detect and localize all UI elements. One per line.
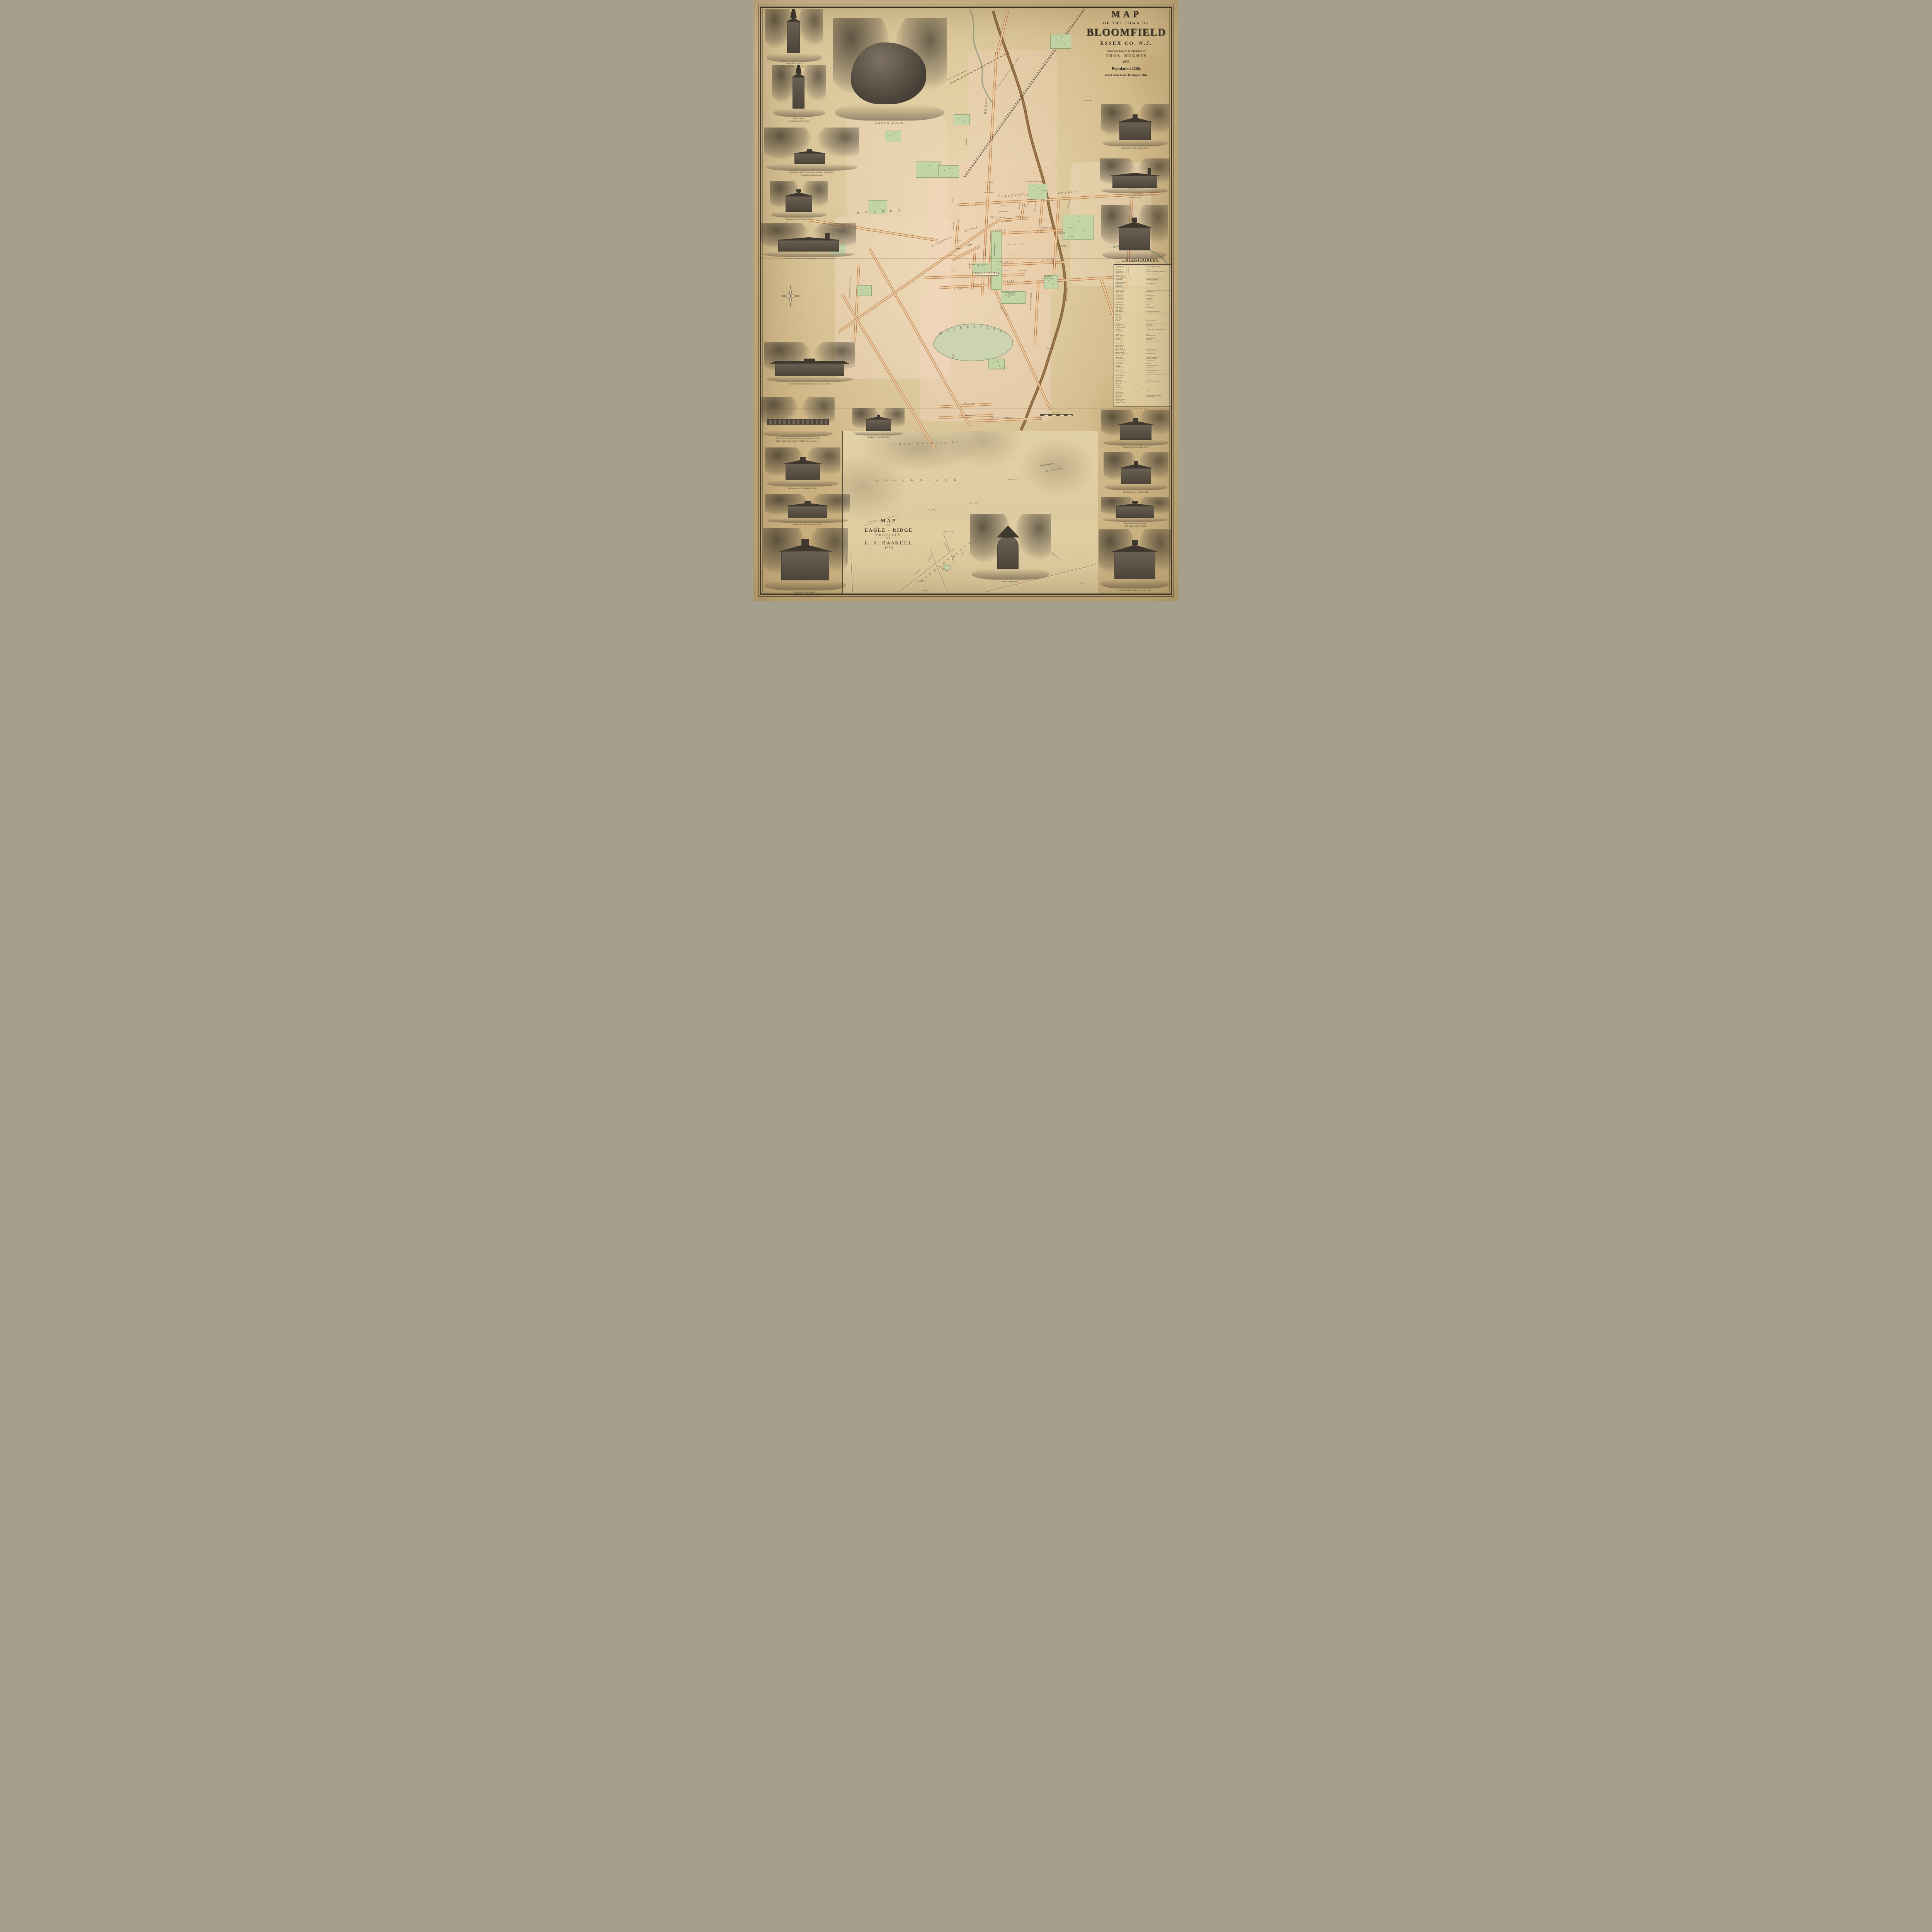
vignette-ground: [763, 430, 833, 437]
subscriber-row: Cockefair, Saml.: [1116, 302, 1170, 304]
vignette-engraving: C. W. Powers' Oakum Manufactory. Residen…: [761, 223, 856, 260]
map-sheet: W A T S E S S I N G MAP OF EAGLE - RIDGE…: [753, 0, 1179, 601]
map-label: C. M. Davis BLOOMFIELD CLASSICAL SCHOOL: [1043, 275, 1054, 279]
subscriber-name: Reford, James A.: [1116, 375, 1146, 377]
inset-label: Walnut Cottage: [917, 581, 925, 583]
map-label: J. C. Beach: [1024, 216, 1030, 217]
vignette-ground: [771, 212, 827, 218]
subscriber-occupation: Hat Manufacturer: [1146, 325, 1170, 327]
title-lithographer: Lith of Friend & Aub, 80 Walnut St. Phil…: [1079, 74, 1174, 77]
vignette-engraving: Residence of C. T. Unangst, Esqr.: [1101, 104, 1169, 150]
map-label: STREET: [1015, 215, 1024, 217]
subscriber-row: Jenkins, Wm. Dealer in Dry Goods & Groce…: [1116, 342, 1170, 343]
subscriber-occupation: Eagle Rock: [1146, 339, 1170, 341]
title-author: THOS. HUGHES: [1079, 54, 1174, 58]
subscriber-row: Haskell, L. S. Eagle Rock: [1116, 339, 1170, 341]
vignette-art: [764, 342, 855, 382]
subscribers-panel: Archdeacon, John Proprietor Bloomfield H…: [1114, 264, 1172, 406]
vignette-art: [1104, 452, 1168, 490]
subscriber-row: Reford, James A.: [1116, 375, 1170, 377]
subscriber-occupation: House Carpenter: [1146, 360, 1170, 361]
vignette-caption: D. Oakes' Cassimere Manufactory, Bloomfi…: [1121, 194, 1148, 199]
map-label: GROVE: [1052, 257, 1055, 264]
map-label: DODD STREET: [992, 417, 1013, 420]
map-label: STREET: [1043, 227, 1056, 230]
vignette-caption: Bloomfield Female Seminary, R. L. Cooke,…: [789, 591, 821, 597]
inset-title-block: MAP OF EAGLE - RIDGE PROPERTY OF L. S. H…: [858, 518, 920, 550]
building-silhouette: [794, 153, 825, 164]
vignette-engraving: Presbyterian Church, Revd. J. M. Sherwoo…: [765, 9, 823, 68]
vignette-caption: J. H. Rondell's Boarding School for Boys…: [1119, 589, 1151, 592]
subscriber-name: Fairchild, Josiah: [1116, 325, 1146, 327]
subscriber-occupation: [1146, 375, 1170, 377]
building-silhouette: [1114, 552, 1155, 579]
subscriber-row: Mallory, John S.: [1116, 355, 1170, 356]
green-parcel: [938, 165, 959, 178]
map-label: M. Mulhern: [1041, 190, 1047, 192]
subscriber-name: Adams, Jay L.: [1116, 267, 1146, 269]
inset-label: HASKELL: [1009, 479, 1023, 481]
subscriber-row: Gorman, Mich'l O. Farmer: [1116, 332, 1170, 333]
scale-label: SCALE: [1040, 412, 1073, 414]
building-silhouette: [1112, 176, 1157, 188]
vignette-engraving: Newark & Bloomfield Rail Road Depot at B…: [764, 342, 855, 386]
inset-title-year: 1856: [858, 546, 920, 550]
vignette-engraving: EAGLE ROCK: [833, 18, 947, 125]
subscribers-title: SUBSCRIBERS.: [1113, 258, 1173, 263]
map-label: A. F. Seon: [1005, 254, 1020, 256]
green-parcel: [954, 114, 970, 125]
title-year: 1856.: [1079, 60, 1174, 64]
map-label: Dr. E. D. Ward: [1002, 270, 1009, 272]
vignette-engraving: Bloomfield Female Seminary, R. L. Cooke,…: [763, 528, 848, 597]
building-silhouette: [866, 420, 890, 431]
subscriber-row: Adams, Jay L.: [1116, 267, 1170, 269]
vignette-art: [761, 223, 856, 257]
map-label: BLOOMFIELD INSTITUTE: [1025, 181, 1043, 183]
building-silhouette: [1116, 506, 1154, 517]
subscriber-row: Baldwin, Edward A.: [1116, 287, 1170, 289]
map-label: H. J. Davis: [1068, 236, 1074, 237]
vignette-ground: [1103, 440, 1169, 446]
map-label: Heirs of J. Ward: [948, 255, 956, 257]
map-label: JERSEY ST.: [953, 222, 955, 230]
vignette-caption: Residence of Wm. B. Bradbury, Esqr.: [788, 487, 817, 490]
subscriber-row: Dodd, Josiah: [1116, 317, 1170, 318]
map-label: Swift: [968, 267, 971, 268]
vignette-caption: Residence of S. A. Brower, Esqr.: [786, 218, 811, 221]
subscriber-name: Unangst, C. T.: [1116, 385, 1146, 386]
subscriber-occupation: [1146, 287, 1170, 289]
vignette-engraving: Residence of David Oakes, Esqr.: [1101, 205, 1168, 263]
vignette-caption: Residence of Ira Dodd, Esqr.: [867, 436, 890, 439]
vignette-engraving: H. B. & W. A. Freeman, Dealers in Watses…: [761, 397, 835, 443]
subscriber-name: Gorman, Mich'l O.: [1116, 332, 1146, 333]
building-silhouette: [1121, 468, 1151, 485]
vignette-art: [1101, 205, 1168, 259]
building-silhouette: [793, 77, 804, 108]
subscriber-occupation: Dealer in Dry Goods & Groceries: [1146, 342, 1170, 343]
vignette-art: [1101, 410, 1170, 446]
subscriber-occupation: [1146, 383, 1170, 384]
title-county: ESSEX CO. N.J.: [1079, 40, 1174, 46]
map-label: T. Taylor: [951, 270, 956, 272]
subscriber-row: Stiles, S. W.: [1116, 383, 1170, 384]
vignette-art: [1099, 529, 1171, 588]
vignette-ground: [766, 53, 822, 62]
map-label: Wm. B. Bradbury: [984, 192, 993, 193]
subscriber-occupation: [1146, 302, 1170, 304]
vignette-engraving: Residence of S. A. Brower, Esqr.: [770, 181, 828, 221]
vignette-art: [1101, 497, 1169, 522]
building-silhouette: [1119, 228, 1150, 250]
subscriber-occupation: [1146, 387, 1170, 389]
map-label: E. S. Davis: [1067, 227, 1073, 229]
vignette-ground: [767, 480, 839, 486]
vignette-art: [852, 408, 905, 435]
map-label: LECTURE ROOM: [1002, 221, 1011, 223]
subscriber-name: Ehlers, H.: [1116, 320, 1146, 322]
subscriber-occupation: Proprietor Oakum Mill: [1146, 370, 1170, 372]
subscriber-name: Haskell, L. S.: [1116, 339, 1146, 341]
subscriber-name: Osborne, Chas. H.: [1116, 360, 1146, 361]
subscriber-name: Powers, C. W.: [1116, 370, 1146, 372]
subscriber-name: Baldwin, Edward A.: [1116, 287, 1146, 289]
map-label: Jay L. Adams: [1046, 348, 1054, 350]
map-label: Dr. J. A. Davis: [1018, 270, 1027, 272]
inset-title-of2: OF: [858, 537, 920, 540]
building-silhouette: [786, 464, 820, 480]
green-parcel: [1028, 184, 1047, 199]
vignette-art: [1100, 158, 1170, 193]
vignette-art: [772, 65, 826, 117]
title-block: MAP OF THE TOWN OF BLOOMFIELD ESSEX CO. …: [1079, 9, 1174, 77]
vignette-ground: [763, 252, 854, 257]
building-silhouette: [787, 22, 800, 54]
vignette-engraving: Residence of William R. Peters, Esqr.: [765, 494, 850, 526]
inset-title-owner: L. S. HASKELL: [858, 540, 920, 546]
vignette-ground: [1100, 579, 1170, 588]
vignette-art: [765, 447, 840, 486]
map-label: J. Collins: [971, 286, 976, 287]
subscriber-name: Cockefair, Saml.: [1116, 302, 1146, 304]
green-parcel: [916, 162, 940, 178]
compass-rose-icon: [779, 284, 802, 308]
subscriber-row: Van Liew, C. S.: [1116, 387, 1170, 389]
scale-rule: [1040, 414, 1073, 416]
map-label: David Oakes: [1084, 100, 1092, 102]
title-town-name: BLOOMFIELD: [1079, 26, 1174, 38]
vignette-ground: [764, 580, 846, 590]
building-silhouette: [775, 364, 844, 376]
vignette-engraving: Residence of Jay L. Adams, Esqr.: [1104, 452, 1168, 494]
map-label: Dr. J. A. Davis: [1005, 294, 1014, 296]
vignette-caption: Eyrie, Eagle Rock.: [1002, 580, 1019, 583]
map-label: Wm. Clarke: [1040, 219, 1046, 220]
map-label: Elias Labaugh: [999, 211, 1007, 212]
building-silhouette: [781, 552, 829, 581]
map-label: N. H. Dodd: [955, 240, 961, 242]
subscriber-occupation: Farmer: [1146, 332, 1170, 333]
subscriber-name: Jenkins, Wm.: [1116, 342, 1146, 343]
building-silhouette: [778, 240, 839, 252]
vignette-engraving: Residence of Wm. B. Bradbury, Esqr.: [765, 447, 840, 490]
inset-title-property: PROPERTY: [858, 533, 920, 537]
tint-wash: [920, 294, 1051, 421]
map-label: MORRIS CANAL: [1065, 287, 1068, 301]
title-surveyed-by: Surveyed, Drawn & Published by: [1079, 49, 1174, 53]
map-label: LAKE: [952, 354, 954, 359]
vignette-ground: [854, 431, 904, 435]
vignette-engraving: Residence of Ira Dodd, Esqr.: [852, 408, 905, 439]
map-label: CANAL: [965, 138, 968, 145]
map-label: BLOOMFIELD FEMALE SEMINARY R. L. Cooke: [969, 264, 988, 267]
vignette-ground: [767, 518, 848, 523]
map-label: Public School: [1000, 205, 1007, 206]
vignette-caption: C. W. Powers' Oakum Manufactory. Residen…: [782, 258, 835, 260]
subscriber-row: Powers, C. W. Proprietor Oakum Mill: [1116, 370, 1170, 372]
map-label: CHURCH: [995, 216, 1005, 218]
vignette-ground: [1101, 188, 1169, 193]
subscriber-name: Stiles, S. W.: [1116, 383, 1146, 384]
green-parcel: [857, 285, 872, 296]
map-label: MYRTLE: [965, 415, 976, 417]
subscriber-occupation: [1146, 355, 1170, 356]
vignette-caption: Bloomfield Classical School, C. M. Davis…: [1124, 522, 1146, 528]
vignette-ground: [766, 164, 857, 171]
inset-title-of: OF: [858, 524, 920, 527]
vignette-ground: [835, 104, 944, 121]
map-label: Israel C. Ward: [1007, 243, 1024, 245]
vignette-ground: [971, 569, 1049, 579]
building-silhouette: [997, 537, 1019, 569]
vignette-art: [764, 128, 859, 171]
subscriber-name: Dodd, Josiah: [1116, 317, 1146, 318]
vignette-caption: H. B. & W. A. Freeman, Dealers in Watses…: [776, 437, 820, 443]
vignette-caption: Residence of Volney Elliot, Esqr.: [1123, 446, 1148, 449]
green-parcel: [1050, 34, 1071, 49]
inset-label: Pond: [943, 568, 946, 570]
vignette-ground: [1105, 484, 1167, 490]
vignette-art: [970, 514, 1051, 580]
subscriber-name: Van Liew, C. S.: [1116, 387, 1146, 389]
vignette-art: [761, 397, 835, 437]
vignette-art: [833, 18, 947, 121]
subscriber-row: Williamson, Wm. J.: [1116, 402, 1170, 403]
inset-title-map: MAP: [858, 518, 920, 524]
inset-label: E A G L E R I D G E: [876, 478, 959, 481]
vignette-engraving: D. Oakes' Cassimere Manufactory, Bloomfi…: [1100, 158, 1170, 199]
vignette-ground: [773, 109, 825, 117]
subscriber-occupation: [1146, 402, 1170, 403]
building-silhouette: [1120, 425, 1151, 440]
subscriber-row: Osborne, Chas. H. House Carpenter: [1116, 360, 1170, 361]
map-label: WILLOW: [964, 403, 976, 405]
vignette-art: [763, 528, 848, 590]
map-label: BEACH: [995, 230, 1007, 233]
building-silhouette: [767, 419, 829, 425]
building-silhouette: [786, 196, 812, 212]
title-of-the-town-of: OF THE TOWN OF: [1079, 21, 1174, 25]
vignette-engraving: Bloomfield Classical School, C. M. Davis…: [1101, 497, 1169, 528]
building-silhouette: [851, 43, 926, 104]
inset-label: Wm. Green, M.D.: [967, 502, 978, 504]
map-label: LUMBER YD. Clarke & Willet: [1058, 232, 1065, 235]
map-label: A. F. Seon: [1040, 261, 1046, 263]
vignette-ground: [1103, 140, 1168, 146]
map-label: LIBERTY: [954, 287, 969, 291]
subscriber-row: Fairchild, Josiah Hat Manufacturer: [1116, 325, 1170, 327]
map-label: J. Wharry: [1019, 193, 1024, 195]
vignette-engraving: Residence of Saml. Benson. Saml. Benson'…: [764, 128, 859, 177]
map-label: Dr. I. D. Dodd: [961, 205, 976, 207]
map-label: STREET: [1003, 280, 1015, 283]
title-map: MAP: [1079, 9, 1174, 20]
inset-label: Mrs. A. R. Frost: [944, 531, 954, 533]
scale-bar: SCALE: [1040, 412, 1073, 416]
green-parcel: [991, 231, 1002, 290]
vignette-caption: Residence of C. T. Unangst, Esqr.: [1122, 147, 1148, 150]
vignette-ground: [1103, 518, 1168, 522]
vignette-art: [765, 9, 823, 62]
vignette-caption: EAGLE ROCK: [875, 121, 904, 125]
subscriber-occupation: [1146, 267, 1170, 269]
vignette-caption: Residence of Jay L. Adams, Esqr.: [1123, 491, 1149, 494]
vignette-engraving: J. H. Rondell's Boarding School for Boys…: [1099, 529, 1171, 592]
vignette-ground: [766, 376, 854, 382]
map-label: PRESB. CH.: [990, 216, 994, 219]
vignette-engraving: Eyrie, Eagle Rock.: [970, 514, 1051, 583]
subscriber-occupation: [1146, 385, 1170, 386]
vignette-caption: Newark & Bloomfield Rail Road Depot at B…: [789, 383, 831, 386]
vignette-caption: Baptist Church, Rev. James H. Pratt, Pas…: [788, 117, 810, 123]
inset-title-name: EAGLE - RIDGE: [858, 527, 920, 533]
vignette-caption: Residence of Saml. Benson. Saml. Benson'…: [789, 172, 834, 177]
vignette-caption: Residence of William R. Peters, Esqr.: [793, 524, 822, 526]
vignette-engraving: Residence of Volney Elliot, Esqr.: [1101, 410, 1170, 449]
subscriber-occupation: Professor of Music: [1146, 320, 1170, 322]
vignette-art: [1101, 104, 1169, 146]
subscriber-name: Williamson, Wm. J.: [1116, 402, 1146, 403]
map-label: BOAT YARD Peloubet & Wharry: [1058, 245, 1067, 248]
subscriber-row: Unangst, C. T.: [1116, 385, 1170, 386]
building-silhouette: [788, 506, 827, 519]
title-population: Population 2200.: [1079, 67, 1174, 71]
map-label: N. H. Baldwin: [985, 182, 993, 183]
map-label: TREMONT STREET: [974, 272, 998, 276]
subscriber-row: Ehlers, H. Professor of Music: [1116, 320, 1170, 322]
vignette-art: [770, 181, 828, 218]
road: [997, 9, 1010, 53]
green-parcel: [885, 131, 901, 142]
subscriber-name: Mallory, John S.: [1116, 355, 1146, 356]
inset-label: John R. Hurd: [928, 509, 937, 511]
building-silhouette: [1119, 122, 1151, 140]
vignette-engraving: Baptist Church, Rev. James H. Pratt, Pas…: [772, 65, 826, 123]
subscriber-occupation: [1146, 317, 1170, 318]
vignette-art: [765, 494, 850, 523]
inset-label: The old Oak: [922, 590, 929, 591]
